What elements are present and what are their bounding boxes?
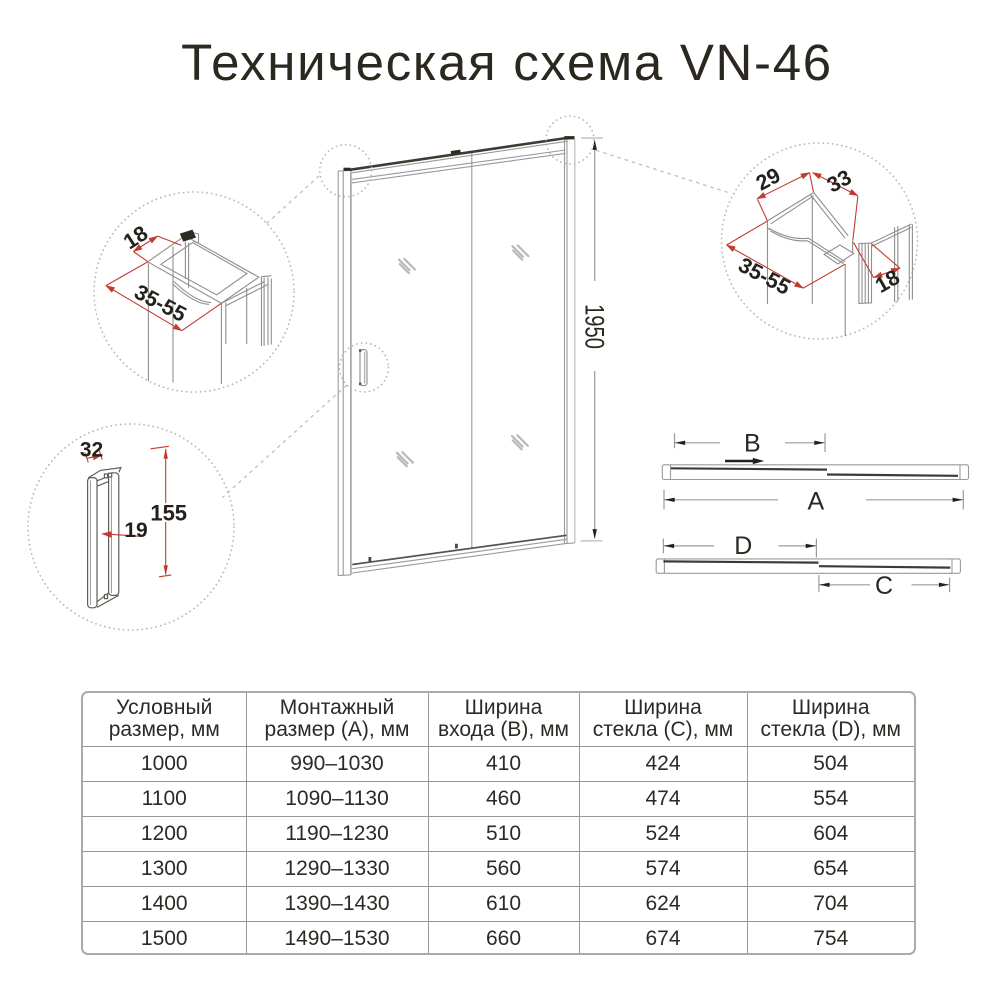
- svg-text:35-55: 35-55: [734, 253, 794, 300]
- svg-text:B: B: [744, 430, 761, 458]
- svg-text:18: 18: [871, 265, 904, 298]
- svg-text:D: D: [734, 532, 752, 560]
- svg-text:1950: 1950: [580, 304, 609, 349]
- svg-text:33: 33: [823, 165, 855, 197]
- svg-text:C: C: [875, 572, 893, 600]
- svg-text:19: 19: [124, 519, 147, 542]
- svg-text:35-55: 35-55: [130, 280, 190, 327]
- svg-text:155: 155: [150, 501, 187, 526]
- svg-text:32: 32: [80, 439, 103, 462]
- svg-text:18: 18: [119, 221, 152, 254]
- svg-text:29: 29: [752, 163, 784, 195]
- svg-text:A: A: [807, 487, 824, 515]
